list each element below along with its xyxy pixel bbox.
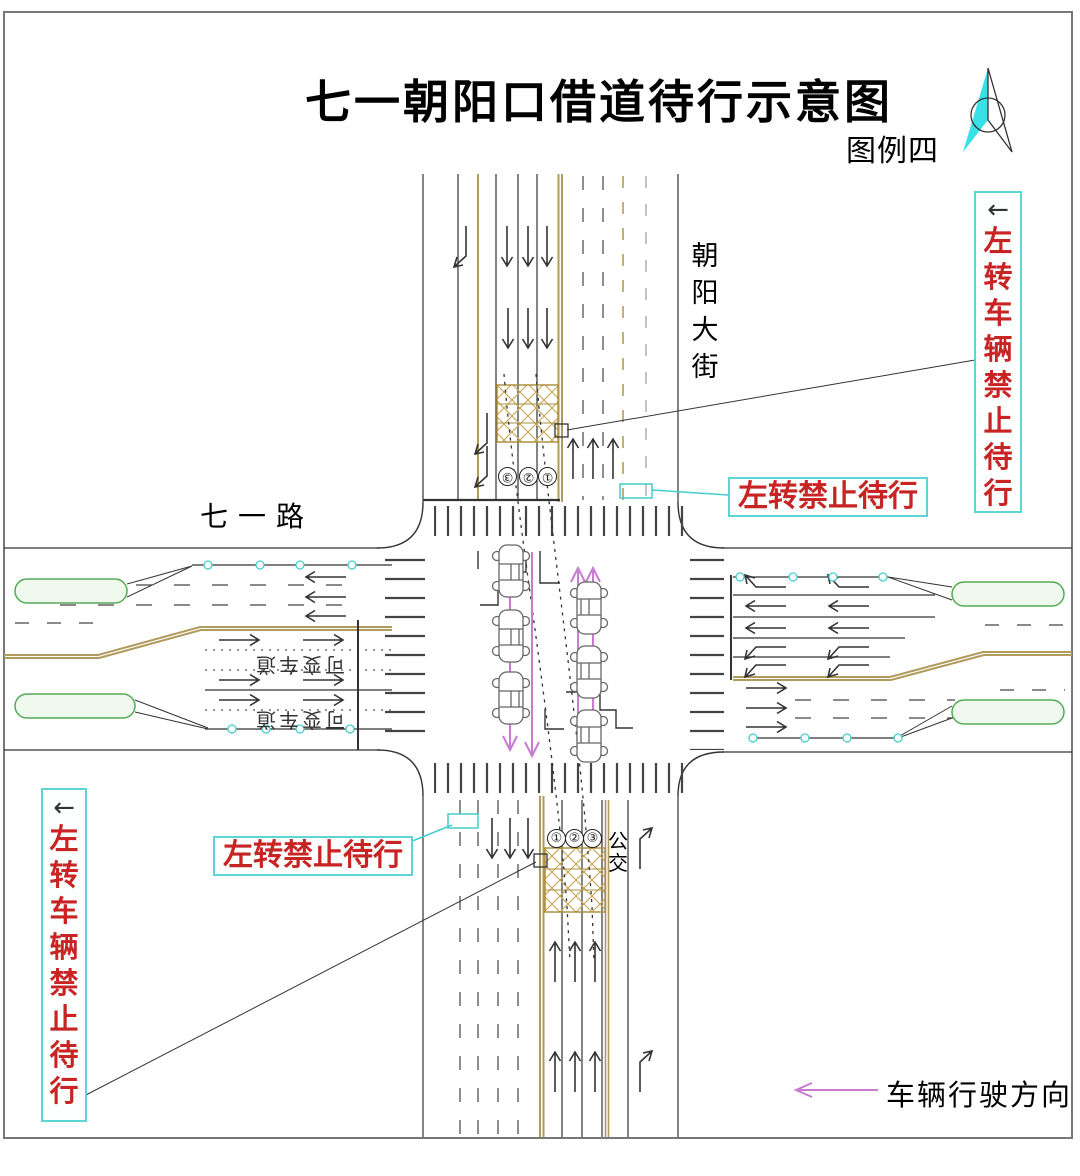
south-lane-number-1: ① [547, 829, 566, 848]
no-wait-callout-north: 左转禁止待行 [728, 477, 928, 517]
intersection-drawing [0, 0, 1080, 1176]
crosswalk-east [690, 556, 724, 750]
no-wait-callout-right: ← 左转车辆禁止待行 [974, 191, 1022, 513]
bus-lane-label: 公交 [607, 831, 629, 875]
legend-tag: 图例四 [846, 126, 939, 170]
left-arrow-icon: ← [53, 794, 75, 822]
no-wait-callout-left-text: 左转车辆禁止待行 [49, 822, 80, 1110]
west-islands [15, 566, 208, 729]
north-lane-number-2: ② [519, 467, 538, 486]
direction-legend-arrow [796, 1083, 878, 1097]
south-lane-number-3: ③ [583, 829, 602, 848]
no-wait-callout-left: ← 左转车辆禁止待行 [41, 788, 87, 1122]
road-name-east-west: 七一路 [200, 495, 314, 535]
direction-legend-label: 车辆行驶方向 [886, 1072, 1072, 1114]
south-waiting-area-hatch [545, 848, 605, 912]
road-name-north-south: 朝阳大街 [690, 238, 720, 386]
crosswalk-north [434, 506, 684, 536]
left-arrow-icon: ← [987, 196, 1009, 224]
crosswalk-south [434, 763, 684, 793]
diagram-canvas: 七一朝阳口借道待行示意图 图例四 朝阳大街 七一路 ← 左转车辆禁止待行 ← 左… [0, 0, 1080, 1176]
north-waiting-area-hatch [497, 385, 558, 442]
west-road-arrows [219, 572, 346, 706]
east-road-arrows [745, 575, 869, 733]
page-title: 七一朝阳口借道待行示意图 [305, 66, 893, 132]
drawing-frame [4, 12, 1072, 1138]
corner-curves [377, 502, 724, 796]
north-lane-number-3: ③ [498, 467, 517, 486]
variable-lane-label-1: 可变车道 [253, 652, 345, 681]
crosswalk-west [385, 552, 425, 748]
south-lane-number-2: ② [565, 829, 584, 848]
north-compass-icon [963, 68, 1012, 152]
no-wait-callout-south: 左转禁止待行 [213, 836, 413, 876]
no-wait-callout-right-text: 左转车辆禁止待行 [983, 224, 1014, 512]
north-lane-number-1: ① [538, 467, 557, 486]
north-road-markings [423, 174, 678, 502]
variable-lane-label-2: 可变车道 [253, 707, 345, 736]
